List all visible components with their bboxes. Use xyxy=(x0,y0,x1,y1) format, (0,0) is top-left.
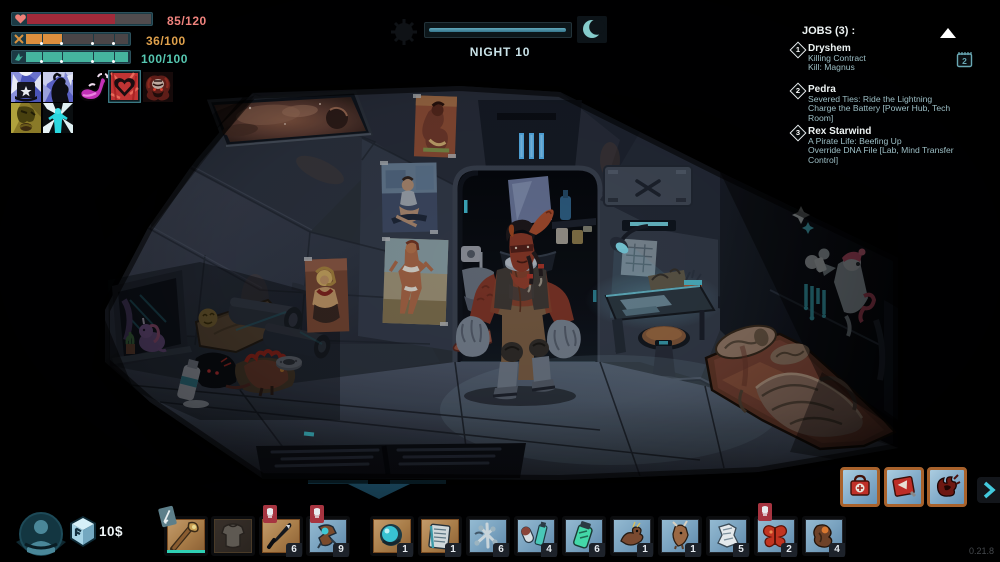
svg-text:2: 2 xyxy=(962,56,967,66)
